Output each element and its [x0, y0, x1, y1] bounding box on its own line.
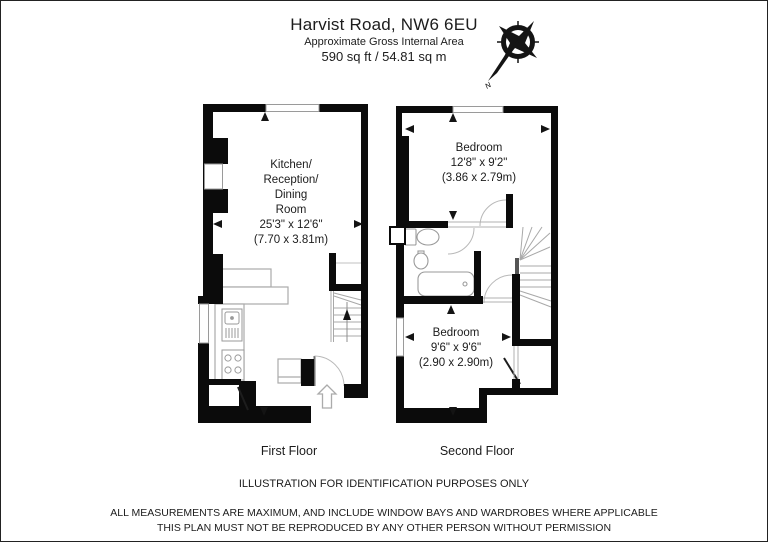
bath-drain [463, 282, 467, 286]
toilet-window-box [390, 227, 405, 244]
bathroom-door [448, 228, 474, 254]
compass-rose-icon: N [483, 21, 539, 91]
room-name: Bedroom [396, 326, 516, 341]
floorplan-drawing: N [1, 1, 768, 542]
toilet-cistern [405, 229, 416, 245]
room-dims-m: (3.86 x 2.79m) [419, 171, 539, 186]
first-floor-caption: First Floor [234, 444, 344, 458]
kitchen-hob [222, 350, 244, 380]
floorplan-page: Harvist Road, NW6 6EU Approximate Gross … [0, 0, 768, 542]
basin [414, 253, 428, 269]
room-name-line: Dining [236, 188, 346, 203]
entry-arrow-icon [318, 385, 336, 408]
reproduction-disclaimer: THIS PLAN MUST NOT BE REPRODUCED BY ANY … [1, 522, 767, 534]
bathroom-fixtures [405, 229, 474, 296]
second-floor-stairs [515, 227, 551, 307]
compass-north-label: N [483, 80, 493, 91]
second-floor-caption: Second Floor [412, 444, 542, 458]
room-dims-m: (2.90 x 2.90m) [396, 356, 516, 371]
room-dims-ft: 12'8" x 9'2" [419, 156, 539, 171]
kitchen-room-label: Kitchen/ Reception/ Dining Room 25'3" x … [236, 158, 346, 248]
bedroom2-door [484, 275, 512, 303]
room-name-line: Reception/ [236, 173, 346, 188]
room-dims-m: (7.70 x 3.81m) [236, 233, 346, 248]
room-dims-ft: 9'6" x 9'6" [396, 341, 516, 356]
room-name: Bedroom [419, 141, 539, 156]
room-name-line: Room [236, 203, 346, 218]
identification-note: ILLUSTRATION FOR IDENTIFICATION PURPOSES… [1, 478, 767, 490]
measurements-disclaimer: ALL MEASUREMENTS ARE MAXIMUM, AND INCLUD… [1, 507, 767, 519]
kitchen-sink [222, 309, 242, 341]
kitchen-appliance [278, 359, 301, 383]
entrance-door [315, 356, 345, 386]
room-name-line: Kitchen/ [236, 158, 346, 173]
first-floor-plan [198, 104, 368, 423]
bedroom1-label: Bedroom 12'8" x 9'2" (3.86 x 2.79m) [419, 141, 539, 186]
toilet-bowl [417, 229, 439, 245]
room-dims-ft: 25'3" x 12'6" [236, 218, 346, 233]
bedroom2-label: Bedroom 9'6" x 9'6" (2.90 x 2.90m) [396, 326, 516, 371]
